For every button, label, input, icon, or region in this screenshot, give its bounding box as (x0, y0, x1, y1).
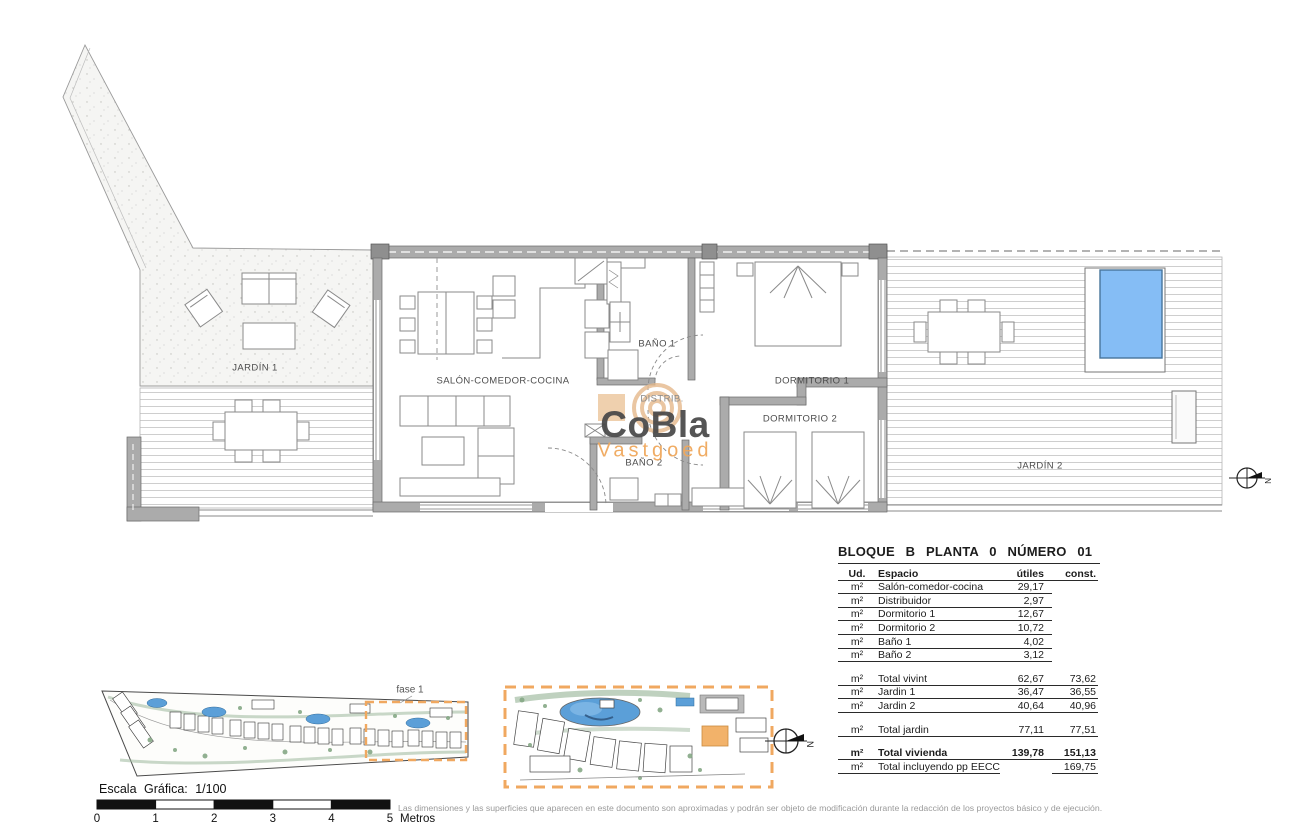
label-dormitorio2: DORMITORIO 2 (763, 414, 837, 425)
nightstand (737, 263, 753, 276)
scale-tick-3: 3 (270, 813, 276, 825)
bathroom1-shower (608, 350, 638, 380)
table-row: m²Dormitorio 210,72 (838, 621, 1100, 635)
table-row: m²Jardin 240,6440,96 (838, 699, 1100, 713)
table-row-total: m²Total vivienda139,78151,13 (838, 747, 1100, 761)
table-row: m²Jardin 136,4736,55 (838, 686, 1100, 700)
label-salon: SALÓN-COMEDOR-COCINA (436, 376, 569, 387)
table-row: m²Total incluyendo pp EECC169,75 (838, 760, 1100, 774)
bathroom2-toilet (610, 478, 638, 500)
table-rule (838, 563, 1100, 564)
label-distribuidor: DISTRIB. (640, 394, 683, 405)
label-jardin2: JARDÍN 2 (1017, 461, 1062, 472)
jardin2-table (928, 312, 1000, 352)
scale-tick-4: 4 (328, 813, 334, 825)
sofa (400, 396, 510, 426)
jardin1-area (63, 45, 373, 386)
table-row: m²Distribuidor2,97 (838, 594, 1100, 608)
scale-label: Escala Gráfica: 1/100 (99, 782, 227, 796)
highlighted-unit (702, 726, 728, 746)
bed-single-1 (744, 432, 796, 508)
table-header-row: Ud. Espacio útiles const. (838, 567, 1100, 581)
bed-single-2 (812, 432, 864, 508)
bed-double (755, 262, 841, 346)
table-row: m²Salón-comedor-cocina29,17 (838, 581, 1100, 595)
scale-tick-2: 2 (211, 813, 217, 825)
floorplan-document: N (0, 0, 1290, 840)
table-title: BLOQUE B PLANTA 0 NÚMERO 01 (838, 544, 1100, 559)
table-row: m²Baño 23,12 (838, 649, 1100, 663)
jardin2-area (887, 251, 1222, 511)
disclaimer-text: Las dimensiones y las superficies que ap… (398, 803, 1098, 813)
label-dormitorio1: DORMITORIO 1 (775, 376, 849, 387)
masterplan-miniature (102, 691, 468, 776)
table-row: m²Baño 14,02 (838, 635, 1100, 649)
label-jardin1: JARDÍN 1 (232, 363, 277, 374)
table-row: m²Total jardin77,1177,51 (838, 723, 1100, 737)
compass-n-label-2: N (805, 741, 815, 748)
label-bano1: BAÑO 1 (638, 339, 675, 350)
jardin1-terrace (127, 388, 373, 521)
scale-bar (97, 800, 390, 809)
table-row: m²Dormitorio 112,67 (838, 608, 1100, 622)
north-compass-icon: N (1229, 468, 1272, 488)
areas-table: BLOQUE B PLANTA 0 NÚMERO 01 Ud. Espacio … (838, 544, 1100, 774)
compass-n-label: N (1263, 478, 1272, 484)
cobla-logo-subtext: Vastgoed (597, 440, 712, 463)
scale-unit: Metros (400, 813, 435, 825)
coffee-table-outdoor (243, 323, 295, 349)
dorm2-cabinet (692, 488, 744, 506)
scale-tick-0: 0 (94, 813, 100, 825)
kitchen-appliance (493, 276, 515, 296)
fase1-label: fase 1 (396, 685, 423, 696)
terrace-table (225, 412, 297, 450)
pool (1100, 270, 1162, 358)
nightstand (842, 263, 858, 276)
shaft (607, 262, 621, 304)
wardrobe (700, 262, 714, 312)
table-row: m²Total vivint62,6773,62 (838, 672, 1100, 686)
siteplan-detail (505, 687, 772, 787)
scale-tick-1: 1 (152, 813, 158, 825)
coffee-table (422, 437, 464, 465)
scale-tick-5: 5 (387, 813, 393, 825)
